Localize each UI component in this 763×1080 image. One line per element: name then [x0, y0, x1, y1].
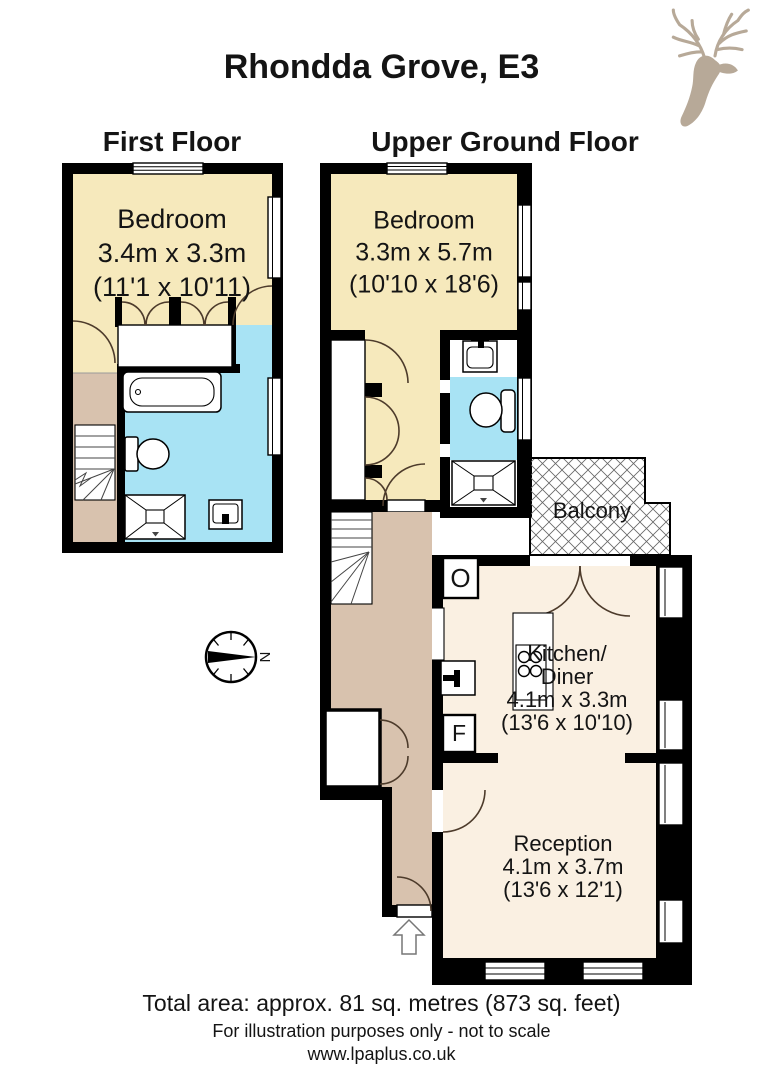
room-size-metric: 4.1m x 3.7m	[502, 854, 623, 879]
first-stairs	[75, 425, 115, 500]
first-toilet	[125, 437, 169, 471]
window	[133, 163, 203, 174]
ug-stairs	[331, 512, 372, 604]
ug-living-block	[432, 555, 692, 985]
window	[659, 900, 683, 943]
stag-antlers-icon	[673, 10, 748, 58]
room-name: Bedroom	[117, 204, 227, 234]
room-name: Bedroom	[373, 207, 474, 235]
ug-closet-strip	[331, 340, 365, 500]
oven-label: O	[450, 563, 470, 593]
window	[518, 205, 531, 277]
entrance-arrow-icon	[394, 920, 424, 954]
first-floor-label: First Floor	[57, 126, 287, 158]
upper-ground-floor-label: Upper Ground Floor	[315, 126, 695, 158]
first-shower	[125, 495, 185, 539]
fridge-label: F	[452, 720, 466, 746]
stag-logo	[650, 8, 755, 133]
disclaimer-text: For illustration purposes only - not to …	[0, 1021, 763, 1042]
floorplan-page: Rhondda Grove, E3 First Floor Upper Grou…	[0, 0, 763, 1080]
window	[583, 962, 643, 980]
page-title: Rhondda Grove, E3	[0, 48, 763, 87]
total-area-text: Total area: approx. 81 sq. metres (873 s…	[0, 990, 763, 1017]
first-bathtub	[123, 372, 221, 412]
compass-rose-icon	[206, 632, 256, 682]
room-size-imperial: (13'6 x 10'10)	[501, 710, 633, 735]
room-size-imperial: (11'1 x 10'11)	[93, 272, 251, 302]
first-floor-plan: Bedroom 3.4m x 3.3m (11'1 x 10'11)	[57, 158, 287, 558]
upper-ground-floor-plan: Balcony	[315, 158, 695, 988]
room-size-imperial: (10'10 x 18'6)	[349, 271, 499, 299]
reception-label: Reception 4.1m x 3.7m (13'6 x 12'1)	[502, 831, 623, 902]
stag-head-icon	[680, 56, 737, 127]
window	[268, 378, 281, 455]
first-wardrobe	[118, 325, 232, 367]
room-name: Diner	[541, 664, 594, 689]
room-size-metric: 3.4m x 3.3m	[98, 238, 247, 268]
room-size-metric: 3.3m x 5.7m	[355, 239, 493, 267]
window	[659, 763, 683, 825]
kitchen-sink	[441, 661, 475, 695]
window	[387, 163, 447, 174]
room-size-metric: 4.1m x 3.3m	[506, 687, 627, 712]
website-text: www.lpaplus.co.uk	[0, 1044, 763, 1065]
window	[518, 378, 531, 440]
room-name: Kitchen/	[527, 641, 607, 666]
compass: N	[200, 625, 285, 695]
window	[659, 567, 683, 618]
window	[485, 962, 545, 980]
window	[268, 197, 281, 278]
compass-north-label: N	[256, 652, 273, 663]
ug-shower	[452, 461, 515, 505]
balcony-label: Balcony	[553, 498, 631, 523]
window	[659, 700, 683, 750]
room-name: Reception	[513, 831, 612, 856]
kitchen-recess	[431, 608, 444, 660]
balcony: Balcony	[530, 458, 670, 555]
oven-appliance: O	[443, 558, 478, 598]
window	[518, 282, 531, 310]
first-basin	[209, 500, 242, 529]
room-size-imperial: (13'6 x 12'1)	[503, 877, 623, 902]
fridge-appliance: F	[443, 715, 475, 752]
